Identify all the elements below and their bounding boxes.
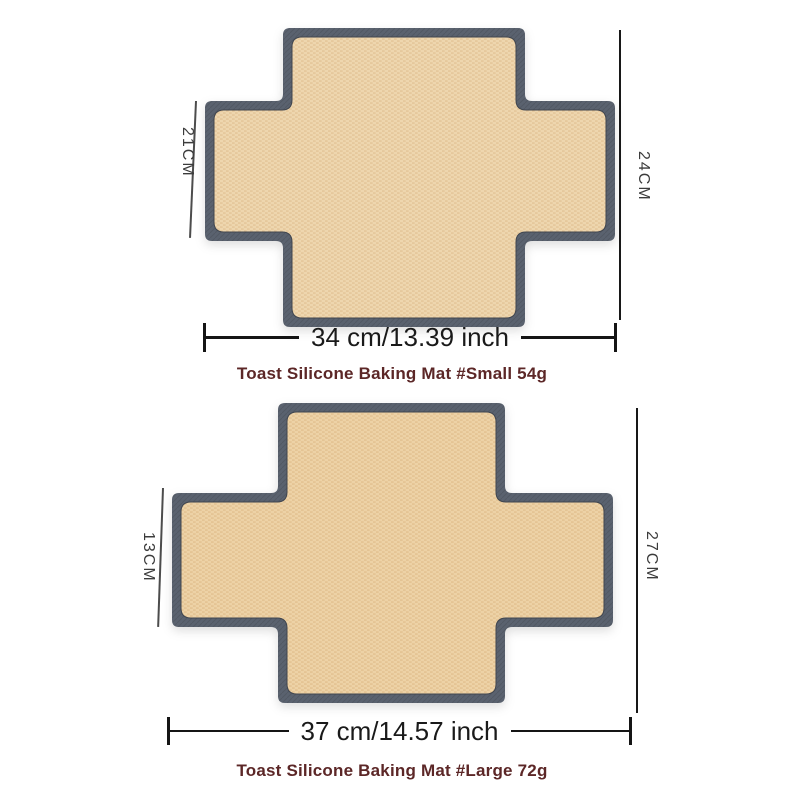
mat-large-surface xyxy=(181,412,604,694)
width-line-segment xyxy=(170,730,289,733)
height-label-right-large: 27CM xyxy=(642,531,660,582)
width-line-small: 34 cm/13.39 inch xyxy=(203,323,617,352)
height-line-left-large xyxy=(157,488,163,627)
product-caption-large: Toast Silicone Baking Mat #Large 72g xyxy=(0,761,784,781)
product-caption-small: Toast Silicone Baking Mat #Small 54g xyxy=(0,364,784,384)
width-line-segment xyxy=(521,336,614,339)
width-line-tick-right xyxy=(614,323,617,352)
height-line-right-small xyxy=(619,30,621,320)
width-label-large: 37 cm/14.57 inch xyxy=(289,716,511,747)
height-line-right-large xyxy=(636,408,638,713)
height-label-right-small: 24CM xyxy=(634,151,652,202)
mat-small-surface xyxy=(214,37,606,318)
width-line-tick-right xyxy=(629,717,632,745)
height-label-left-large: 13CM xyxy=(139,532,157,583)
width-label-small: 34 cm/13.39 inch xyxy=(299,322,521,353)
product-dimension-diagram: 21CM 24CM 34 cm/13.39 inch Toast Silicon… xyxy=(0,0,800,800)
height-label-left-small: 21CM xyxy=(178,127,196,178)
width-line-segment xyxy=(511,730,630,733)
width-line-large: 37 cm/14.57 inch xyxy=(167,717,632,745)
baking-mat-small-image xyxy=(205,28,615,327)
width-line-segment xyxy=(206,336,299,339)
baking-mat-large-image xyxy=(172,403,613,703)
